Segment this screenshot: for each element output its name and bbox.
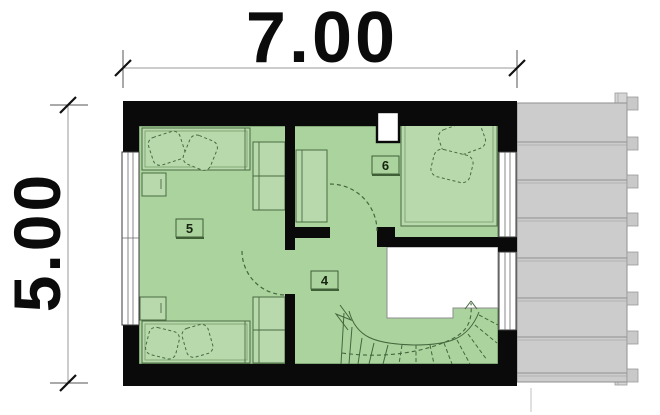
floor-plan-drawing: 5 6 4 7.00 5.00: [0, 0, 660, 415]
exterior-wall-left-lower: [123, 325, 139, 386]
exterior-wall-bottom: [123, 364, 517, 386]
exterior-wall-top: [123, 101, 517, 126]
exterior-wall-right-upper: [498, 101, 517, 152]
interior-wall-room6-bottom: [395, 237, 499, 247]
rafter-tabs: [627, 97, 638, 382]
bed-icon: [142, 128, 250, 172]
exterior-wall-left-upper: [123, 101, 139, 152]
dimension-height-value: 5.00: [0, 172, 74, 312]
nightstand-icon: [142, 173, 166, 196]
left-dimension: 5.00: [0, 97, 88, 391]
interior-wall-vertical-lower: [285, 294, 295, 364]
wardrobe-icon: [296, 150, 327, 222]
bed-icon: [142, 321, 250, 363]
window-right-upper: [499, 152, 516, 237]
wardrobe-icon: [253, 297, 285, 363]
roof-overhang: [517, 93, 638, 412]
top-dimension: 7.00: [115, 0, 525, 88]
interior-wall-corner: [377, 227, 395, 247]
interior-wall-stub: [285, 227, 330, 238]
floor-plan-canvas: 5 6 4 7.00 5.00: [0, 0, 660, 415]
room-label-6: 6: [372, 156, 400, 175]
stair-void: [387, 247, 498, 318]
window-right-lower: [499, 252, 516, 330]
double-bed-icon: [401, 117, 497, 226]
room-number: 6: [382, 158, 389, 173]
wardrobe-icon: [253, 142, 285, 210]
nightstand-icon: [140, 297, 166, 320]
room-number: 5: [186, 221, 193, 236]
room-label-5: 5: [176, 219, 204, 238]
exterior-wall-right-lower: [498, 330, 517, 386]
exterior-wall-right-pier: [498, 237, 517, 252]
window-left: [122, 152, 139, 325]
dimension-width-value: 7.00: [246, 0, 398, 78]
room-number: 4: [321, 273, 329, 288]
room-label-4: 4: [311, 271, 339, 290]
chimney-icon: [377, 112, 399, 142]
